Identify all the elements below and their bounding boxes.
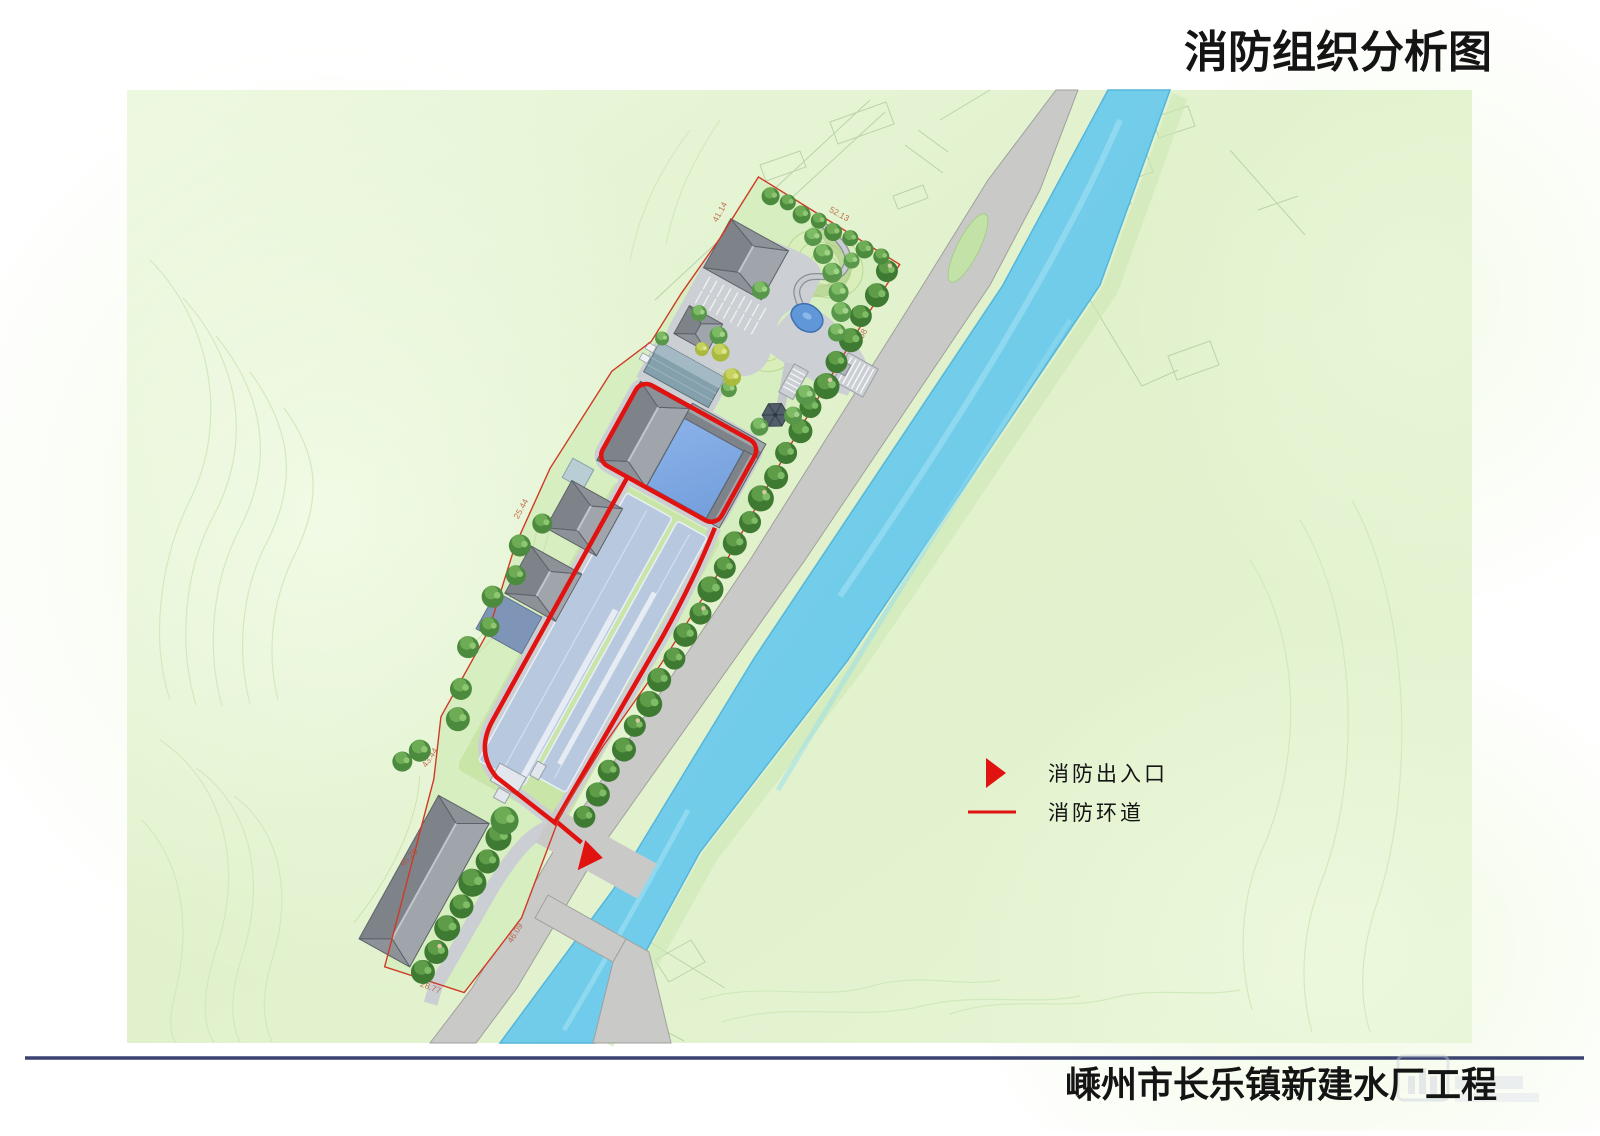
project-title: 嵊州市长乐镇新建水厂工程 [1065,1064,1497,1105]
legend-entrance-label: 消防出入口 [1048,763,1168,786]
fire-analysis-plan: 41.1452.1367.5825.4443.4446.2828.7746.09… [0,0,1600,1131]
page-title: 消防组织分析图 [1184,28,1492,77]
legend-ring-label: 消防环道 [1048,802,1144,825]
